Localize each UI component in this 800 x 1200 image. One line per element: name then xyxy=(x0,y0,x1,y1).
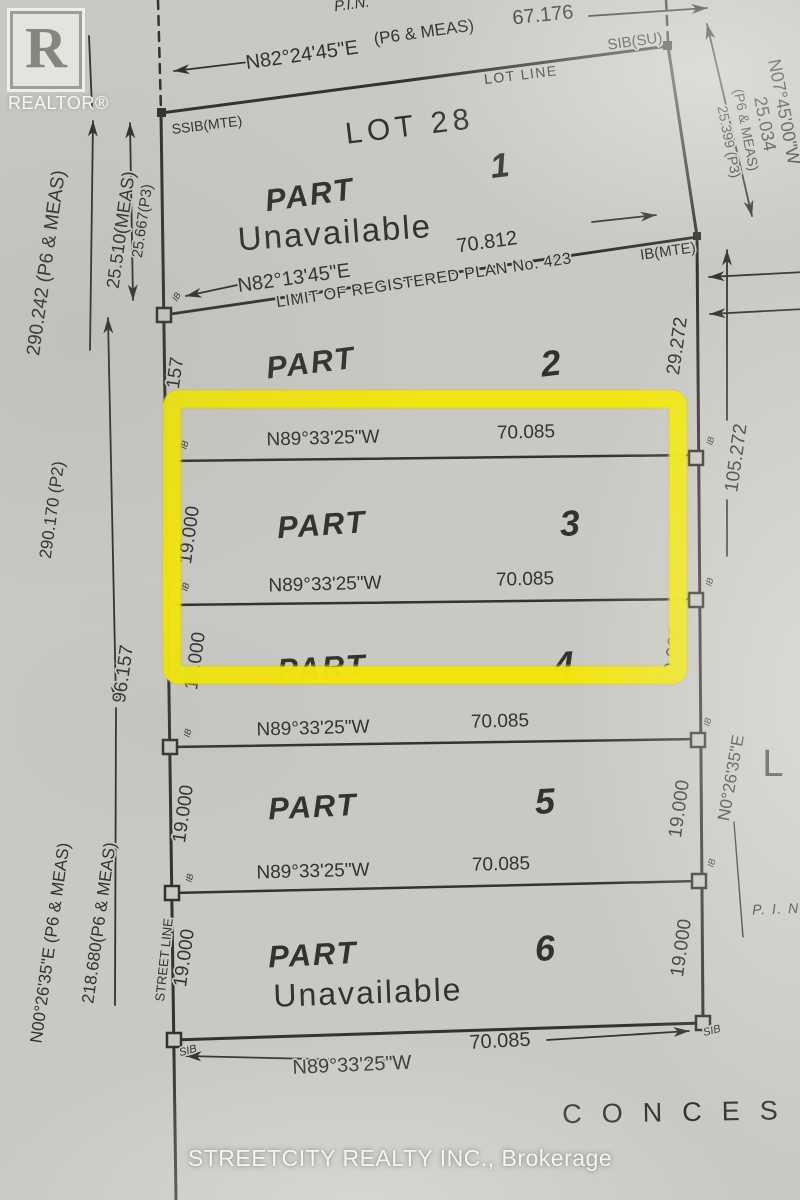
label-part5-num: 5 xyxy=(534,780,557,822)
survey-plan-listing-image: P.I.N.N82°24'45"E(P6 & MEAS)67.176SIB(SU… xyxy=(0,0,800,1200)
realtor-wordmark: REALTOR® xyxy=(8,93,98,114)
label-dist-part5-6: 70.085 xyxy=(472,853,531,876)
label-part6-label: PART xyxy=(267,935,359,975)
label-dist-part3-top: 70.085 xyxy=(497,421,556,444)
label-bearing-part4-5: N89°33'25"W xyxy=(256,717,370,741)
realtor-r-glyph: R xyxy=(25,19,67,77)
realtor-logo: R REALTOR® xyxy=(8,11,98,114)
marker-square xyxy=(163,740,177,754)
marker-square xyxy=(689,451,703,465)
marker-square xyxy=(165,886,179,900)
realtor-logo-box: R xyxy=(10,11,82,89)
marker-filled xyxy=(663,41,672,50)
label-dist-bottom: 70.085 xyxy=(469,1029,531,1054)
label-dist-part4-5: 70.085 xyxy=(471,710,530,733)
label-part3-num: 3 xyxy=(558,502,581,544)
marker-square xyxy=(167,1033,181,1047)
label-dim-157: 157 xyxy=(163,356,188,390)
survey-plan-drawing: P.I.N.N82°24'45"E(P6 & MEAS)67.176SIB(SU… xyxy=(0,0,800,1200)
label-part6-num: 6 xyxy=(534,927,557,969)
label-concession-text: CONCES xyxy=(562,1095,798,1129)
label-bearing-part3-top: N89°33'25"W xyxy=(266,427,380,451)
label-dist-part3-bot: 70.085 xyxy=(496,568,555,591)
label-bearing-part3-bot: N89°33'25"W xyxy=(268,573,382,597)
marker-square xyxy=(689,593,703,607)
brokerage-watermark: STREETCITY REALTY INC., Brokerage xyxy=(188,1145,612,1172)
marker-square xyxy=(692,874,706,888)
label-part3-label: PART xyxy=(276,504,369,545)
label-bearing-part5-6: N89°33'25"W xyxy=(256,860,370,884)
label-pin-right: P. I. N xyxy=(752,900,800,918)
label-part6-unavailable: Unavailable xyxy=(273,971,463,1014)
marker-square xyxy=(691,733,705,747)
label-part5-label: PART xyxy=(267,787,359,827)
marker-square xyxy=(157,308,171,322)
marker-filled xyxy=(157,108,166,117)
label-letter-l: L xyxy=(762,743,783,785)
